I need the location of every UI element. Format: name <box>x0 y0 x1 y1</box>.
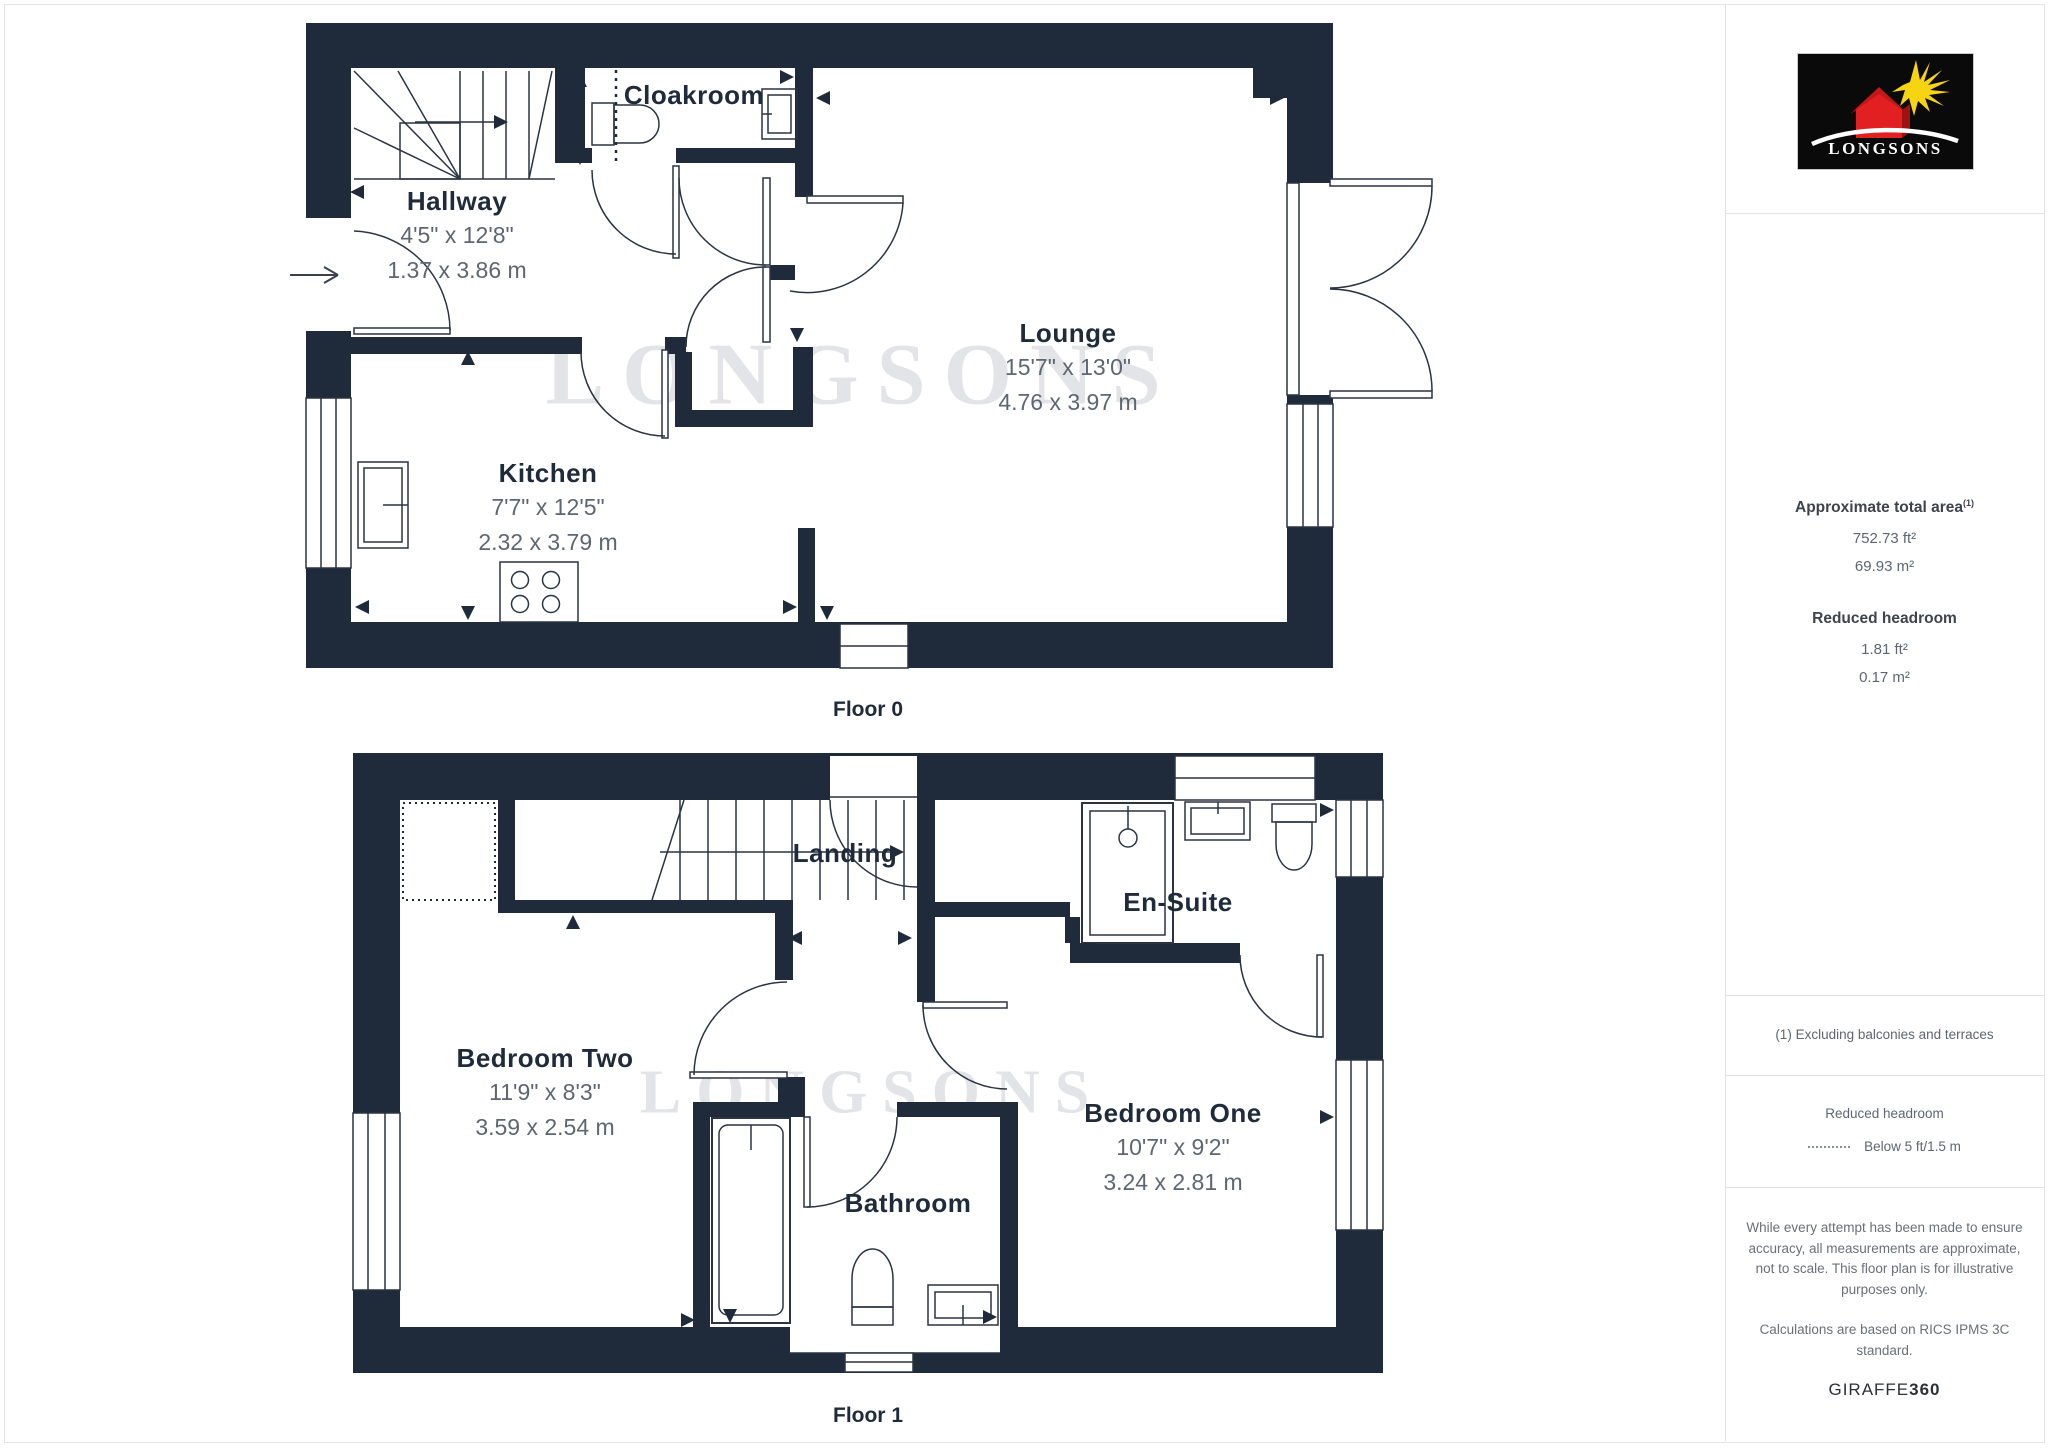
total-area-heading: Approximate total area(1) <box>1725 498 2044 517</box>
legend-title: Reduced headroom <box>1725 1106 2044 1121</box>
lounge-name: Lounge <box>998 316 1137 350</box>
bathroom-toilet <box>852 1249 893 1325</box>
room-label-lounge: Lounge 15'7" x 13'0" 4.76 x 3.97 m <box>998 316 1137 420</box>
ensuite-toilet <box>1272 804 1316 870</box>
floor1-arrows <box>566 803 1334 1327</box>
room-label-kitchen: Kitchen 7'7" x 12'5" 2.32 x 3.79 m <box>478 456 617 560</box>
sidebar-divider <box>1726 995 2044 996</box>
cloakroom-basin <box>762 89 797 139</box>
room-label-bedroom-two: Bedroom Two 11'9" x 8'3" 3.59 x 2.54 m <box>457 1041 634 1145</box>
room-label-bedroom-one: Bedroom One 10'7" x 9'2" 3.24 x 2.81 m <box>1084 1096 1261 1200</box>
floor1-caption: Floor 1 <box>833 1404 903 1428</box>
kitchen-name: Kitchen <box>478 456 617 490</box>
kitchen-hob <box>500 562 578 622</box>
lounge-dims-ft: 15'7" x 13'0" <box>998 350 1137 385</box>
lounge-dims-m: 4.76 x 3.97 m <box>998 385 1137 420</box>
bedroom-one-dims-m: 3.24 x 2.81 m <box>1084 1165 1261 1200</box>
room-label-en-suite: En-Suite <box>1123 885 1232 919</box>
reduced-headroom-heading: Reduced headroom <box>1725 610 2044 628</box>
sidebar-divider <box>1726 1075 2044 1076</box>
bedroom-one-dims-ft: 10'7" x 9'2" <box>1084 1130 1261 1165</box>
cloakroom-name: Cloakroom <box>624 78 764 112</box>
sidebar-divider <box>1726 1187 2044 1188</box>
bedroom-two-dims-ft: 11'9" x 8'3" <box>457 1075 634 1110</box>
credit: GIRAFFE360 <box>1725 1380 2044 1400</box>
kitchen-dims-m: 2.32 x 3.79 m <box>478 525 617 560</box>
kitchen-dims-ft: 7'7" x 12'5" <box>478 490 617 525</box>
hallway-dims-ft: 4'5" x 12'8" <box>387 218 526 253</box>
reduced-headroom-m: 0.17 m² <box>1725 664 2044 692</box>
reduced-headroom-area <box>403 803 495 900</box>
legend-block: Reduced headroom Below 5 ft/1.5 m <box>1725 1106 2044 1154</box>
agency-logo-text: LONGSONS <box>1798 139 1973 159</box>
disclaimer-1: While every attempt has been made to ens… <box>1725 1218 2044 1300</box>
credit-bold: 360 <box>1909 1380 1940 1399</box>
dotted-line-icon <box>1808 1146 1850 1148</box>
floorplan-page: LONGSONS LONGSONS <box>0 0 2048 1449</box>
agency-logo: LONGSONS <box>1797 53 1974 170</box>
room-label-bathroom: Bathroom <box>845 1186 972 1220</box>
footnote: (1) Excluding balconies and terraces <box>1725 1027 2044 1042</box>
shower <box>1082 803 1173 943</box>
room-label-hallway: Hallway 4'5" x 12'8" 1.37 x 3.86 m <box>387 184 526 288</box>
credit-normal: GIRAFFE <box>1828 1380 1909 1399</box>
kitchen-sink <box>358 462 408 548</box>
floor0-caption: Floor 0 <box>833 698 903 722</box>
total-area-m: 69.93 m² <box>1725 553 2044 581</box>
room-label-landing: Landing <box>793 836 898 870</box>
hallway-name: Hallway <box>387 184 526 218</box>
disclaimer-2: Calculations are based on RICS IPMS 3C s… <box>1725 1320 2044 1361</box>
bedroom-one-name: Bedroom One <box>1084 1096 1261 1130</box>
bathroom-name: Bathroom <box>845 1186 972 1220</box>
total-area-block: Approximate total area(1) 752.73 ft² 69.… <box>1725 498 2044 581</box>
info-sidebar: LONGSONS Approximate total area(1) 752.7… <box>1725 4 2044 1441</box>
bedroom-two-name: Bedroom Two <box>457 1041 634 1075</box>
french-doors <box>1330 179 1432 398</box>
reduced-headroom-ft: 1.81 ft² <box>1725 636 2044 664</box>
reduced-headroom-block: Reduced headroom 1.81 ft² 0.17 m² <box>1725 610 2044 692</box>
legend-entry: Below 5 ft/1.5 m <box>1725 1139 2044 1154</box>
landing-name: Landing <box>793 836 898 870</box>
hallway-dims-m: 1.37 x 3.86 m <box>387 253 526 288</box>
en-suite-name: En-Suite <box>1123 885 1232 919</box>
floor0-stairs <box>354 71 555 179</box>
bedroom-two-dims-m: 3.59 x 2.54 m <box>457 1110 634 1145</box>
sidebar-divider <box>1726 213 2044 214</box>
total-area-ft: 752.73 ft² <box>1725 525 2044 553</box>
room-label-cloakroom: Cloakroom <box>624 78 764 112</box>
ensuite-basin <box>1185 802 1250 840</box>
bathtub <box>712 1118 790 1323</box>
